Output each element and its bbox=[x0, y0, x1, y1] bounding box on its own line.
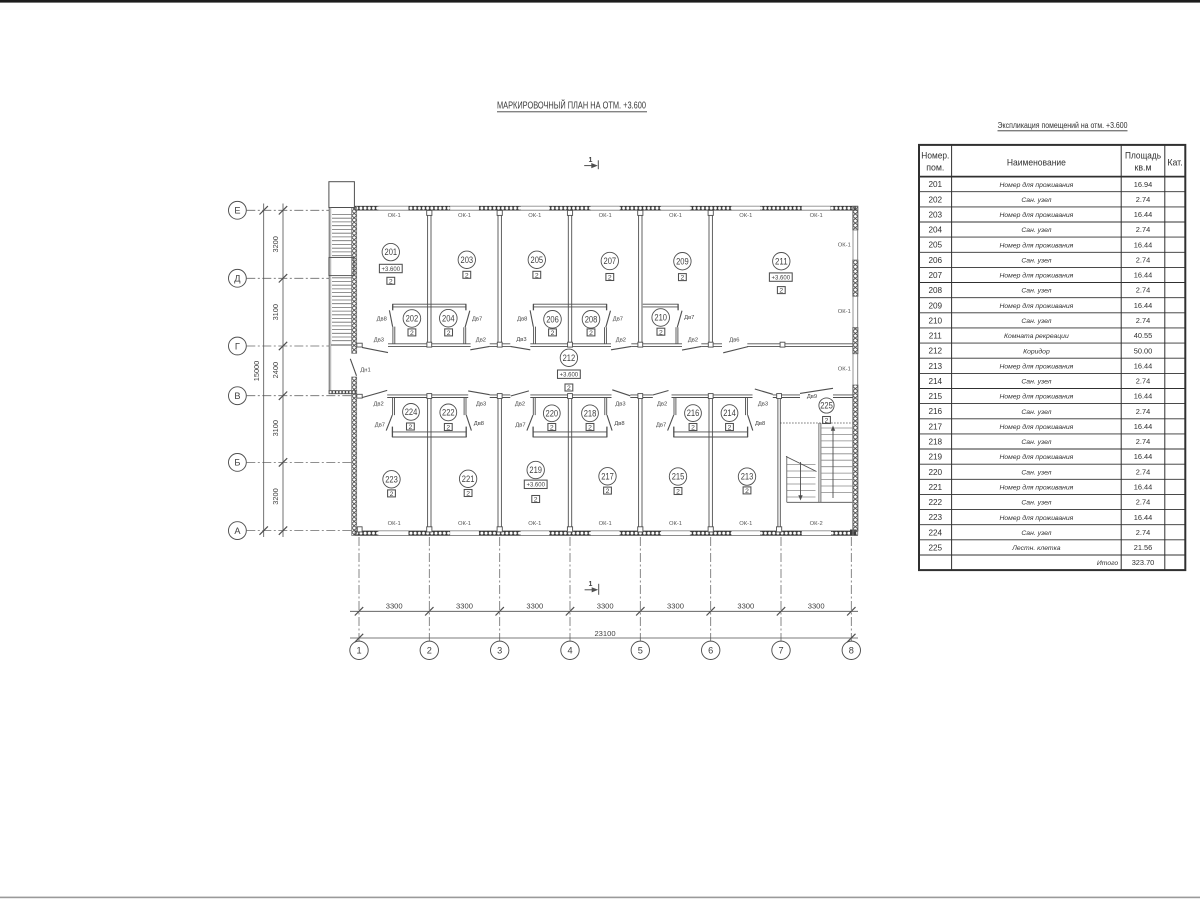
svg-text:216: 216 bbox=[928, 407, 942, 416]
svg-text:220: 220 bbox=[546, 408, 559, 418]
svg-text:204: 204 bbox=[442, 313, 455, 323]
svg-text:Сан. узел: Сан. узел bbox=[1021, 469, 1051, 476]
svg-text:210: 210 bbox=[654, 313, 667, 323]
svg-text:Номер для проживания: Номер для проживания bbox=[999, 453, 1073, 461]
svg-text:ОК-1: ОК-1 bbox=[838, 366, 851, 372]
svg-text:223: 223 bbox=[928, 513, 942, 522]
svg-text:МАРКИРОВОЧНЫЙ ПЛАН НА ОТМ. +3.: МАРКИРОВОЧНЫЙ ПЛАН НА ОТМ. +3.600 bbox=[497, 99, 646, 112]
svg-text:221: 221 bbox=[928, 483, 942, 492]
svg-text:ОК-1: ОК-1 bbox=[739, 213, 752, 219]
svg-text:16.44: 16.44 bbox=[1134, 513, 1153, 522]
svg-text:Площадь: Площадь bbox=[1125, 150, 1161, 160]
svg-text:205: 205 bbox=[531, 255, 544, 265]
svg-text:ОК-1: ОК-1 bbox=[810, 213, 823, 219]
svg-text:Дв8: Дв8 bbox=[377, 316, 387, 322]
svg-text:8: 8 bbox=[849, 646, 854, 656]
svg-text:208: 208 bbox=[585, 314, 598, 324]
svg-text:222: 222 bbox=[928, 498, 942, 507]
svg-text:пом.: пом. bbox=[926, 162, 944, 172]
svg-text:Номер для проживания: Номер для проживания bbox=[999, 362, 1073, 370]
svg-text:Дв6: Дв6 bbox=[729, 338, 739, 344]
svg-text:3300: 3300 bbox=[808, 602, 825, 611]
svg-text:Номер для проживания: Номер для проживания bbox=[999, 241, 1073, 249]
svg-text:206: 206 bbox=[546, 314, 559, 324]
svg-text:Дн1: Дн1 bbox=[360, 367, 370, 373]
svg-text:2: 2 bbox=[550, 425, 554, 432]
svg-text:Наименование: Наименование bbox=[1007, 156, 1066, 167]
svg-text:Номер для проживания: Номер для проживания bbox=[999, 423, 1073, 431]
svg-text:2.74: 2.74 bbox=[1136, 256, 1150, 265]
svg-text:ОК-1: ОК-1 bbox=[458, 213, 471, 219]
svg-text:203: 203 bbox=[461, 255, 474, 265]
svg-text:Итого: Итого bbox=[1097, 560, 1119, 567]
svg-text:Сан. узел: Сан. узел bbox=[1021, 409, 1051, 416]
svg-text:16.44: 16.44 bbox=[1134, 422, 1153, 431]
svg-text:2: 2 bbox=[466, 491, 470, 498]
svg-text:2: 2 bbox=[606, 488, 610, 495]
svg-text:225: 225 bbox=[928, 543, 942, 552]
svg-text:Дв8: Дв8 bbox=[755, 421, 765, 427]
svg-text:219: 219 bbox=[928, 453, 942, 462]
svg-text:3300: 3300 bbox=[737, 602, 754, 611]
svg-text:+3.600: +3.600 bbox=[382, 266, 401, 273]
svg-text:+3.600: +3.600 bbox=[526, 482, 545, 489]
svg-text:2: 2 bbox=[535, 272, 539, 279]
svg-text:Сан. узел: Сан. узел bbox=[1021, 379, 1051, 386]
svg-text:ОК-1: ОК-1 bbox=[388, 521, 401, 527]
svg-text:Номер для проживания: Номер для проживания bbox=[999, 272, 1073, 280]
svg-text:16.44: 16.44 bbox=[1134, 483, 1153, 492]
svg-text:3300: 3300 bbox=[597, 602, 614, 611]
svg-text:323.70: 323.70 bbox=[1132, 558, 1155, 567]
svg-text:Номер.: Номер. bbox=[921, 150, 949, 160]
svg-text:Лестн. клетка: Лестн. клетка bbox=[1011, 545, 1061, 552]
svg-text:3300: 3300 bbox=[456, 602, 473, 611]
svg-text:216: 216 bbox=[687, 408, 700, 418]
svg-text:2: 2 bbox=[676, 489, 680, 496]
svg-text:ОК-1: ОК-1 bbox=[669, 521, 682, 527]
svg-text:Сан. узел: Сан. узел bbox=[1021, 530, 1051, 537]
svg-text:201: 201 bbox=[385, 247, 398, 257]
svg-text:2.74: 2.74 bbox=[1136, 225, 1150, 234]
svg-text:213: 213 bbox=[928, 362, 942, 371]
svg-text:3200: 3200 bbox=[271, 488, 280, 504]
svg-text:ОК-1: ОК-1 bbox=[669, 213, 682, 219]
svg-text:Дв3: Дв3 bbox=[516, 337, 526, 343]
svg-text:Дв7: Дв7 bbox=[684, 315, 694, 321]
svg-text:Экспликация помещений на отм.: Экспликация помещений на отм. +3.600 bbox=[998, 121, 1129, 130]
svg-text:5: 5 bbox=[638, 646, 643, 656]
svg-text:2: 2 bbox=[681, 275, 685, 282]
svg-text:217: 217 bbox=[928, 422, 942, 431]
svg-text:217: 217 bbox=[601, 471, 614, 481]
svg-text:Дв8: Дв8 bbox=[517, 316, 527, 322]
svg-text:+3.600: +3.600 bbox=[772, 275, 791, 282]
svg-text:2: 2 bbox=[389, 278, 393, 285]
svg-text:2.74: 2.74 bbox=[1136, 407, 1150, 416]
svg-text:Дв3: Дв3 bbox=[374, 337, 384, 343]
svg-text:Дв7: Дв7 bbox=[472, 316, 482, 322]
svg-text:Дв7: Дв7 bbox=[375, 423, 385, 429]
svg-text:219: 219 bbox=[529, 465, 542, 475]
svg-text:Коридор: Коридор bbox=[1023, 347, 1050, 355]
svg-text:ОК-1: ОК-1 bbox=[838, 309, 851, 315]
svg-text:2: 2 bbox=[447, 330, 451, 337]
svg-text:16.44: 16.44 bbox=[1134, 361, 1153, 370]
svg-text:218: 218 bbox=[584, 408, 597, 418]
svg-text:Дв3: Дв3 bbox=[476, 402, 486, 408]
svg-text:202: 202 bbox=[928, 195, 942, 204]
svg-text:2: 2 bbox=[551, 330, 555, 337]
svg-text:2: 2 bbox=[589, 330, 593, 337]
svg-text:Сан. узел: Сан. узел bbox=[1021, 258, 1051, 265]
svg-text:202: 202 bbox=[406, 314, 419, 324]
svg-text:208: 208 bbox=[928, 286, 942, 295]
svg-text:215: 215 bbox=[672, 472, 685, 482]
svg-text:+3.600: +3.600 bbox=[560, 372, 579, 379]
svg-text:ОК-1: ОК-1 bbox=[739, 521, 752, 527]
svg-text:2: 2 bbox=[465, 272, 469, 279]
svg-text:Номер для проживания: Номер для проживания bbox=[999, 484, 1073, 492]
svg-text:Номер для проживания: Номер для проживания bbox=[999, 514, 1073, 522]
svg-text:Дв7: Дв7 bbox=[656, 423, 666, 429]
svg-text:ОК-1: ОК-1 bbox=[388, 213, 401, 219]
svg-text:ОК-1: ОК-1 bbox=[599, 213, 612, 219]
svg-text:220: 220 bbox=[928, 468, 942, 477]
svg-text:2: 2 bbox=[691, 425, 695, 432]
svg-text:16.44: 16.44 bbox=[1134, 452, 1153, 461]
svg-text:Дв7: Дв7 bbox=[613, 316, 623, 322]
svg-text:15000: 15000 bbox=[252, 361, 261, 382]
svg-text:212: 212 bbox=[563, 353, 576, 363]
svg-text:2.74: 2.74 bbox=[1136, 195, 1150, 204]
svg-text:Дв3: Дв3 bbox=[758, 401, 768, 407]
svg-text:Сан. узел: Сан. узел bbox=[1021, 197, 1051, 204]
svg-text:А: А bbox=[234, 526, 241, 536]
svg-text:ОК-1: ОК-1 bbox=[458, 521, 471, 527]
svg-text:209: 209 bbox=[928, 301, 942, 310]
svg-text:ОК-2: ОК-2 bbox=[810, 521, 823, 527]
svg-text:Номер для проживания: Номер для проживания bbox=[999, 393, 1073, 401]
svg-text:214: 214 bbox=[723, 408, 736, 418]
svg-text:Дв9: Дв9 bbox=[807, 394, 817, 400]
svg-text:2: 2 bbox=[534, 497, 538, 504]
svg-text:2: 2 bbox=[745, 488, 749, 495]
svg-text:40.55: 40.55 bbox=[1134, 331, 1153, 340]
svg-text:3300: 3300 bbox=[667, 602, 684, 611]
svg-text:16.44: 16.44 bbox=[1134, 392, 1153, 401]
svg-text:7: 7 bbox=[778, 646, 783, 656]
svg-text:Номер для проживания: Номер для проживания bbox=[999, 181, 1073, 189]
svg-text:Дв2: Дв2 bbox=[515, 401, 525, 407]
svg-text:Дв2: Дв2 bbox=[688, 338, 698, 344]
svg-text:1: 1 bbox=[588, 157, 592, 164]
svg-text:2: 2 bbox=[427, 646, 432, 656]
svg-text:223: 223 bbox=[385, 474, 398, 484]
svg-text:221: 221 bbox=[462, 474, 475, 484]
svg-text:215: 215 bbox=[928, 392, 942, 401]
svg-text:Номер для проживания: Номер для проживания bbox=[999, 302, 1073, 310]
svg-text:16.44: 16.44 bbox=[1134, 210, 1153, 219]
svg-text:2.74: 2.74 bbox=[1136, 498, 1150, 507]
svg-text:3300: 3300 bbox=[386, 602, 403, 611]
svg-text:Комната рекреации: Комната рекреации bbox=[1004, 333, 1069, 340]
svg-text:16.44: 16.44 bbox=[1134, 240, 1153, 249]
svg-text:211: 211 bbox=[929, 332, 942, 341]
svg-text:2: 2 bbox=[410, 330, 414, 337]
svg-text:209: 209 bbox=[676, 256, 689, 266]
svg-text:2.74: 2.74 bbox=[1136, 377, 1150, 386]
svg-text:ОК-1: ОК-1 bbox=[599, 521, 612, 527]
svg-text:16.44: 16.44 bbox=[1134, 271, 1153, 280]
svg-text:23100: 23100 bbox=[594, 629, 615, 638]
svg-text:3200: 3200 bbox=[271, 236, 280, 252]
svg-text:Кат.: Кат. bbox=[1167, 157, 1182, 167]
svg-text:2.74: 2.74 bbox=[1136, 286, 1150, 295]
svg-text:Дв8: Дв8 bbox=[474, 421, 484, 427]
svg-text:ОК-1: ОК-1 bbox=[528, 213, 541, 219]
svg-text:Г: Г bbox=[235, 341, 240, 351]
svg-text:Сан. узел: Сан. узел bbox=[1021, 288, 1051, 295]
svg-text:3300: 3300 bbox=[526, 602, 543, 611]
svg-text:204: 204 bbox=[928, 226, 942, 235]
svg-text:205: 205 bbox=[928, 241, 942, 250]
svg-text:212: 212 bbox=[928, 347, 942, 356]
svg-text:210: 210 bbox=[928, 316, 942, 325]
svg-text:211: 211 bbox=[775, 256, 788, 266]
svg-text:Дв8: Дв8 bbox=[614, 421, 624, 427]
svg-text:3100: 3100 bbox=[271, 420, 280, 436]
svg-text:2: 2 bbox=[779, 288, 783, 295]
svg-text:Е: Е bbox=[234, 206, 240, 216]
svg-text:2.74: 2.74 bbox=[1136, 316, 1150, 325]
svg-text:2: 2 bbox=[588, 425, 592, 432]
svg-text:225: 225 bbox=[820, 401, 833, 411]
svg-text:16.44: 16.44 bbox=[1134, 301, 1153, 310]
svg-text:2: 2 bbox=[567, 385, 571, 392]
svg-text:Дв2: Дв2 bbox=[657, 401, 667, 407]
svg-text:2.74: 2.74 bbox=[1136, 437, 1150, 446]
svg-text:Д: Д bbox=[234, 274, 241, 284]
svg-text:Сан. узел: Сан. узел bbox=[1021, 439, 1051, 446]
svg-text:Сан. узел: Сан. узел bbox=[1021, 227, 1051, 234]
svg-text:222: 222 bbox=[442, 408, 455, 418]
svg-text:Номер для проживания: Номер для проживания bbox=[999, 211, 1073, 219]
svg-text:кв.м: кв.м bbox=[1134, 162, 1151, 172]
svg-text:214: 214 bbox=[928, 377, 942, 386]
svg-text:Дв2: Дв2 bbox=[373, 402, 383, 408]
svg-text:207: 207 bbox=[928, 271, 942, 280]
svg-text:224: 224 bbox=[405, 407, 418, 417]
svg-text:207: 207 bbox=[604, 256, 617, 266]
svg-text:21.56: 21.56 bbox=[1134, 543, 1153, 552]
svg-text:213: 213 bbox=[741, 472, 754, 482]
svg-text:1: 1 bbox=[589, 581, 593, 588]
svg-text:ОК-1: ОК-1 bbox=[838, 243, 851, 249]
svg-text:2: 2 bbox=[825, 418, 829, 425]
svg-text:Сан. узел: Сан. узел bbox=[1021, 318, 1051, 325]
svg-text:201: 201 bbox=[928, 180, 942, 189]
svg-text:6: 6 bbox=[708, 646, 713, 656]
svg-text:2.74: 2.74 bbox=[1136, 528, 1150, 537]
svg-text:2: 2 bbox=[608, 275, 612, 282]
svg-text:Дв3: Дв3 bbox=[615, 401, 625, 407]
svg-text:4: 4 bbox=[567, 646, 572, 656]
svg-text:Дв7: Дв7 bbox=[515, 423, 525, 429]
svg-text:ОК-1: ОК-1 bbox=[528, 521, 541, 527]
svg-text:2400: 2400 bbox=[271, 362, 280, 378]
svg-text:1: 1 bbox=[356, 646, 361, 656]
svg-text:2: 2 bbox=[390, 491, 394, 498]
svg-text:2: 2 bbox=[446, 425, 450, 432]
svg-text:Б: Б bbox=[234, 458, 240, 468]
svg-text:3: 3 bbox=[497, 646, 502, 656]
svg-text:2: 2 bbox=[728, 425, 732, 432]
svg-text:2: 2 bbox=[409, 424, 413, 431]
svg-text:Дв2: Дв2 bbox=[616, 337, 626, 343]
svg-text:16.94: 16.94 bbox=[1134, 180, 1153, 189]
svg-text:Дв2: Дв2 bbox=[476, 337, 486, 343]
svg-text:3100: 3100 bbox=[271, 304, 280, 320]
svg-text:2: 2 bbox=[659, 329, 663, 336]
svg-text:2.74: 2.74 bbox=[1136, 467, 1150, 476]
svg-text:203: 203 bbox=[928, 211, 942, 220]
svg-text:206: 206 bbox=[928, 256, 942, 265]
svg-text:218: 218 bbox=[928, 438, 942, 447]
svg-text:224: 224 bbox=[928, 528, 942, 537]
svg-text:50.00: 50.00 bbox=[1134, 346, 1153, 355]
svg-text:Сан. узел: Сан. узел bbox=[1021, 500, 1051, 507]
svg-text:В: В bbox=[234, 391, 240, 401]
